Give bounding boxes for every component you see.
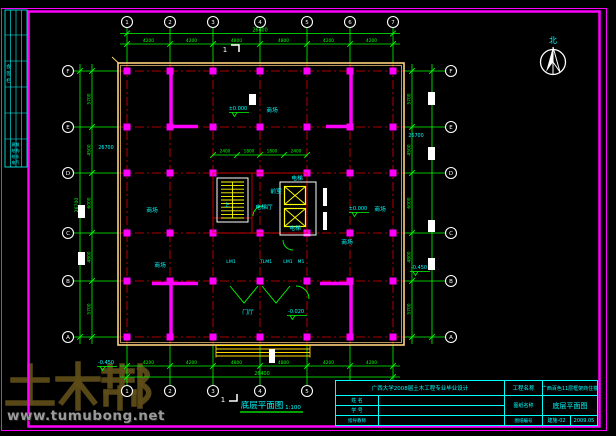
plan-title-scale: 1:100	[285, 405, 301, 411]
north-label: 北	[549, 36, 557, 45]
room-label: 门厅	[242, 308, 254, 316]
elevation-label: -0.450	[98, 360, 114, 366]
axis-bubble-label: A	[66, 335, 70, 341]
dim-text: 4800	[87, 251, 93, 262]
wall-fill	[323, 188, 327, 206]
room-label: 前室	[270, 187, 282, 195]
axis-bubble-label: 5	[305, 20, 309, 26]
cad-canvas: 会签栏建筑结构给水电气11223344556677FFEEDDCCBBAA264…	[0, 0, 616, 436]
dim-text: 4200	[323, 38, 334, 44]
title-block-project-label: 工程名称	[504, 380, 543, 396]
title-block-sheet-label: 图纸名称	[504, 395, 543, 416]
column	[390, 334, 397, 341]
dim-text-total: 26400	[252, 28, 267, 34]
elevation-mark	[232, 113, 237, 117]
column	[390, 124, 397, 131]
watermark-logo-stroke	[80, 384, 94, 402]
dim-text: 2400	[220, 149, 231, 154]
axis-bubble-label: 2	[168, 20, 172, 26]
dim-text: 4800	[231, 38, 242, 44]
dim-text: 4800	[278, 38, 289, 44]
title-block-sheet-name: 底层平面图	[542, 395, 598, 416]
dim-text: 1800	[267, 149, 278, 154]
axis-bubble-label: C	[449, 231, 453, 237]
dim-text: 5700	[87, 93, 93, 104]
dim-text: 5700	[407, 93, 413, 104]
title-block-project-name: 广西百色11层框架商住楼	[542, 380, 598, 396]
door-tag: M1	[298, 259, 305, 265]
axis-bubble-label: 2	[168, 389, 172, 395]
elevation-mark	[290, 316, 295, 320]
section-mark-number: 1	[223, 46, 227, 54]
column	[167, 170, 174, 177]
dim-text-mask	[78, 252, 85, 265]
column	[210, 278, 217, 285]
axis-bubble-label: 6	[348, 20, 352, 26]
dim-text: 6000	[407, 197, 413, 208]
watermark-url: www.tumubong.net	[7, 408, 165, 424]
sheet-inner-border	[29, 12, 600, 427]
section-mark	[231, 45, 239, 52]
building-outline-inner	[121, 66, 402, 343]
dim-text-mask	[428, 92, 435, 105]
elevation-mark	[352, 213, 357, 217]
column	[347, 170, 354, 177]
room-label: 电梯厅	[255, 203, 273, 211]
column	[124, 124, 131, 131]
column	[124, 68, 131, 75]
column	[257, 68, 264, 75]
column	[390, 68, 397, 75]
axis-bubble-label: 3	[211, 389, 215, 395]
building-outline	[118, 63, 404, 345]
signature-strip-title: 会	[6, 63, 11, 70]
axis-bubble-label: 7	[391, 20, 395, 26]
dim-text: 1800	[244, 149, 255, 154]
signature-strip-cell: 建筑	[12, 141, 20, 147]
dim-text: 2400	[291, 149, 302, 154]
elevation-label: -0.020	[288, 309, 304, 315]
wall-fill	[323, 212, 327, 230]
dim-text: 5700	[407, 303, 413, 314]
dim-text: 4200	[143, 38, 154, 44]
dim-text: 4200	[186, 360, 197, 366]
room-label: 商场	[154, 261, 166, 269]
room-label: 商场	[146, 206, 158, 214]
column	[257, 278, 264, 285]
axis-bubble-label: 5	[305, 389, 309, 395]
watermark-logo-stroke	[62, 384, 76, 402]
elevation-mark	[413, 272, 418, 276]
column	[304, 278, 311, 285]
column	[210, 68, 217, 75]
signature-strip-cell: 结构	[12, 147, 20, 153]
dim-text-mask	[78, 205, 85, 218]
signature-strip-title: 签	[6, 70, 11, 77]
dim-note: 26700	[408, 133, 423, 139]
dim-text: 4800	[407, 251, 413, 262]
column	[390, 230, 397, 237]
signature-strip-title: 栏	[6, 77, 11, 84]
title-block-date: 2009.05	[570, 415, 598, 426]
dim-text: 4800	[231, 360, 242, 366]
dim-text: 4500	[407, 144, 413, 155]
dim-text: 4200	[366, 38, 377, 44]
door-tag: TLM1	[259, 259, 272, 265]
dim-text-mask	[428, 147, 435, 160]
column	[257, 124, 264, 131]
door-swing	[283, 240, 293, 250]
dim-text: 4500	[87, 144, 93, 155]
room-label: 电梯	[291, 174, 303, 182]
room-label: 商场	[266, 106, 278, 114]
title-block-advisor-value	[378, 415, 505, 426]
column	[124, 334, 131, 341]
title-block-school: 广西大学2008届土木工程专业毕业设计	[335, 380, 505, 396]
door-tag: LM1	[226, 259, 236, 265]
axis-bubble-label: 3	[211, 20, 215, 26]
axis-bubble-label: 4	[258, 389, 262, 395]
axis-bubble-label: A	[449, 335, 453, 341]
elevation-label: ±0.000	[349, 206, 368, 212]
axis-bubble-label: 1	[125, 20, 129, 26]
room-label: 商场	[341, 238, 353, 246]
column	[167, 230, 174, 237]
title-block-no-label: 图纸编号	[504, 415, 543, 426]
door-tag: LM1	[283, 259, 293, 265]
title-block-sheet-no: 建施-02	[542, 415, 571, 426]
section-mark-number: 1	[221, 396, 225, 404]
section-mark	[229, 394, 237, 401]
dim-text: 5700	[87, 303, 93, 314]
column	[124, 278, 131, 285]
axis-bubble-label: 1	[125, 389, 129, 395]
axis-bubble-label: B	[449, 279, 453, 285]
column	[124, 230, 131, 237]
axis-bubble-label: E	[449, 125, 453, 131]
column	[304, 68, 311, 75]
axis-bubble-label: F	[66, 69, 69, 75]
dim-text-mask	[428, 258, 435, 270]
elevation-label: ±0.000	[229, 106, 248, 112]
dim-text: 4200	[143, 360, 154, 366]
axis-bubble-label: F	[449, 69, 452, 75]
column	[124, 170, 131, 177]
axis-bubble-label: C	[66, 231, 70, 237]
outline-leader	[112, 57, 119, 64]
title-block-advisor-label: 指导教师	[335, 415, 379, 426]
entrance-door	[230, 286, 258, 303]
entrance-door	[262, 286, 290, 303]
title-block: 广西大学2008届土木工程专业毕业设计 工程名称 广西百色11层框架商住楼 姓 …	[335, 380, 598, 426]
column	[304, 124, 311, 131]
axis-bubble-label: 4	[258, 20, 262, 26]
dim-text-total: 26400	[254, 371, 269, 377]
column	[347, 230, 354, 237]
column	[304, 334, 311, 341]
dim-text: 4800	[278, 360, 289, 366]
column	[390, 170, 397, 177]
column	[210, 124, 217, 131]
signature-strip-cell: 给水	[12, 153, 20, 159]
dim-text-mask	[269, 349, 275, 363]
dim-text: 6000	[87, 197, 93, 208]
column	[390, 278, 397, 285]
dim-text: 4200	[186, 38, 197, 44]
axis-bubble-label: D	[449, 171, 453, 177]
column	[257, 334, 264, 341]
dim-text-mask	[428, 220, 435, 232]
column	[210, 334, 217, 341]
axis-bubble-label: D	[66, 171, 70, 177]
room-label: 上	[224, 201, 230, 209]
room-label: 商场	[374, 205, 386, 213]
dim-text: 4200	[323, 360, 334, 366]
dim-text-mask	[249, 94, 256, 105]
dim-note: 26700	[98, 145, 113, 151]
elevation-label: -0.450	[411, 265, 427, 271]
dim-text: 4200	[366, 360, 377, 366]
plan-title: 底层平面图	[241, 400, 284, 411]
axis-bubble-label: B	[66, 279, 70, 285]
cad-screenshot: { "colors": { "bg": "#000000", "frame": …	[0, 0, 616, 436]
signature-strip-cell: 电气	[12, 159, 20, 165]
room-label: 电梯	[289, 224, 301, 232]
axis-bubble-label: E	[66, 125, 70, 131]
